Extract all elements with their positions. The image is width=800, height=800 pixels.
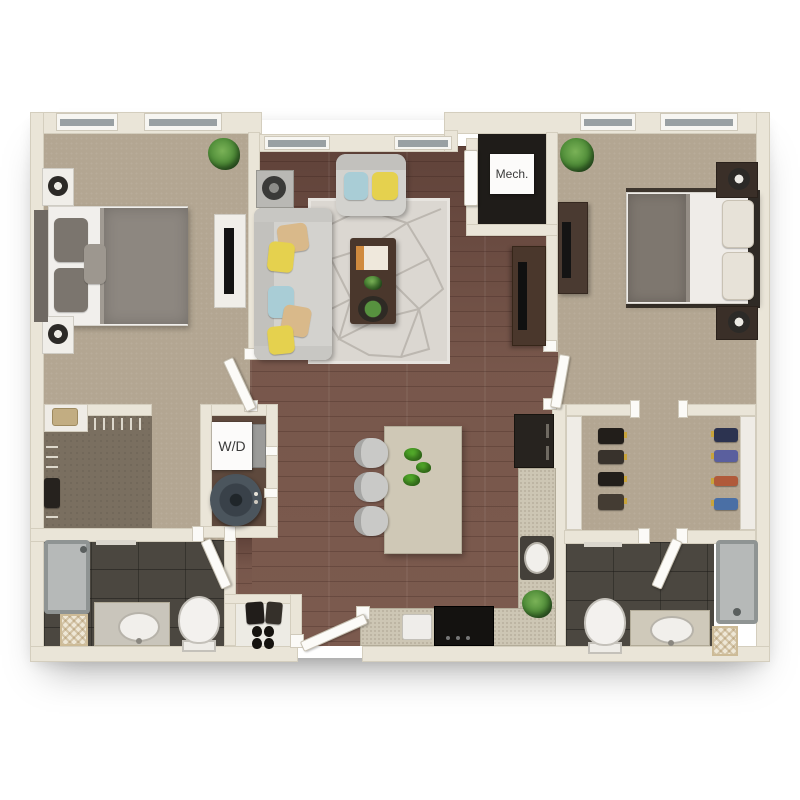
- kitchen-counter-plant: [522, 590, 552, 618]
- hanger-icon: [130, 418, 132, 430]
- wall-laundry-bottom: [200, 526, 278, 538]
- bathroom1-hamper: [60, 614, 88, 646]
- window-glass: [665, 119, 733, 126]
- entry-closet-coat: [265, 601, 283, 624]
- stove-knob: [466, 636, 470, 640]
- stove-knob: [456, 636, 460, 640]
- window-bedroom2-left: [580, 113, 636, 131]
- bedroom2-lamp-bottom: [728, 311, 750, 333]
- bathroom1-toilet: [178, 596, 220, 644]
- doorframe-closet2-left: [630, 400, 640, 418]
- window-glass: [149, 119, 217, 126]
- hanger-icon: [46, 456, 58, 458]
- hanger-hook-icon: [624, 454, 627, 460]
- bedroom2-blanket: [628, 194, 690, 302]
- bedroom1-headboard: [34, 210, 48, 322]
- hanger-icon: [139, 418, 141, 430]
- hanger-icon: [46, 446, 58, 448]
- bathroom2-hamper: [712, 626, 738, 656]
- laundry-machine-panel: [252, 424, 266, 468]
- doorframe-laundry-top: [264, 446, 278, 456]
- doorframe-bathroom2-left: [638, 528, 650, 544]
- bedroom1-tv: [224, 228, 234, 294]
- entry-closet-coat: [245, 601, 264, 624]
- island-greens: [416, 462, 431, 473]
- bedroom1-pillow-bottom: [54, 268, 88, 312]
- hanger-icon: [46, 466, 58, 468]
- laundry-label-text: W/D: [218, 438, 245, 454]
- closet2-hanging-clothes-purple: [714, 450, 738, 462]
- wall-closet2-top-left: [566, 404, 638, 416]
- floor-plan: Mech. W/D: [0, 0, 800, 800]
- island-greens: [403, 474, 420, 486]
- closet2-hanging-clothes-dark: [598, 450, 624, 464]
- bedroom1-pillow-top: [54, 218, 88, 262]
- closet2-shelf-left: [566, 416, 582, 530]
- wall-closet2-top-right: [680, 404, 756, 416]
- refrigerator-handle: [546, 424, 549, 438]
- wall-bathroom1-right: [224, 540, 236, 646]
- hanger-icon: [94, 418, 96, 430]
- shoe-icon: [252, 626, 262, 637]
- armchair-pillow-yellow: [372, 172, 398, 200]
- shoe-icon: [264, 638, 274, 649]
- closet2-hanging-clothes-orange: [714, 476, 738, 486]
- closet2-hanging-clothes-navy: [714, 428, 738, 442]
- doorframe-laundry-bottom: [264, 488, 278, 498]
- wall-mech-bottom: [466, 224, 558, 236]
- closet2-hanging-clothes-blue: [714, 498, 738, 510]
- wall-bedroom1-closet-stub: [86, 404, 152, 416]
- closet1-hanging-clothes: [44, 478, 60, 508]
- armchair-pillow-blue: [344, 172, 368, 200]
- exterior-wall-bottom-right: [362, 646, 770, 662]
- coffee-table-magazine: [356, 246, 388, 270]
- living-armchair-back: [336, 154, 406, 170]
- coffee-table-plant: [364, 276, 382, 290]
- tub-faucet: [733, 608, 741, 616]
- hanger-icon: [121, 418, 123, 430]
- closet2-hanging-clothes-dark: [598, 494, 624, 510]
- closet2-hanging-clothes-dark: [598, 472, 624, 486]
- hanger-hook-icon: [711, 478, 714, 484]
- bathroom2-towel-bar: [584, 542, 622, 547]
- bedroom2-pillow-top: [722, 200, 754, 248]
- doorframe-bathroom1-right: [224, 526, 236, 542]
- hanger-hook-icon: [711, 431, 714, 437]
- bedroom1-accent-pillow: [84, 244, 106, 284]
- window-glass: [398, 140, 448, 147]
- window-bedroom1-left: [56, 113, 118, 131]
- doorframe-bathroom1-left: [192, 526, 204, 542]
- island-stool: [354, 438, 388, 468]
- bedroom2-lamp-top: [728, 168, 750, 190]
- window-glass: [60, 119, 114, 126]
- hanger-hook-icon: [624, 498, 627, 504]
- hanger-hook-icon: [624, 476, 627, 482]
- stove: [434, 606, 494, 646]
- kitchen-small-appliance: [402, 614, 432, 640]
- mech-label: Mech.: [490, 154, 534, 194]
- washer-control-dot: [254, 492, 258, 496]
- hanger-hook-icon: [711, 500, 714, 506]
- window-glass: [584, 119, 633, 126]
- bedroom1-plant: [208, 138, 240, 170]
- refrigerator-handle: [546, 446, 549, 460]
- shoe-icon: [252, 638, 262, 649]
- bedroom1-duvet: [100, 208, 188, 324]
- wall-living-bedroom2: [546, 132, 558, 352]
- hanger-icon: [46, 516, 58, 518]
- bathroom1-faucet: [136, 638, 142, 644]
- hanger-hook-icon: [624, 432, 627, 438]
- hanger-hook-icon: [711, 453, 714, 459]
- sofa-pillow-yellow-bottom: [267, 325, 296, 356]
- window-living-right: [394, 136, 452, 150]
- shower1-head: [80, 546, 87, 553]
- bedroom1-lamp-top: [48, 176, 68, 196]
- window-bedroom1-right: [144, 113, 222, 131]
- doorframe-closet2-right: [678, 400, 688, 418]
- living-tv: [518, 262, 527, 330]
- shoe-icon: [264, 626, 274, 637]
- island-stool: [354, 472, 388, 502]
- living-speaker: [262, 176, 286, 200]
- kitchen-island: [384, 426, 462, 554]
- bedroom2-tv: [562, 222, 571, 278]
- washer-control-dot: [254, 500, 258, 504]
- coffee-table-bowl: [358, 296, 388, 322]
- bathroom2-toilet: [584, 598, 626, 646]
- bedroom1-lamp-bottom: [48, 324, 68, 344]
- wall-laundry-right: [266, 404, 278, 538]
- bedroom2-plant: [560, 138, 594, 172]
- hanger-icon: [112, 418, 114, 430]
- kitchen-sink: [524, 542, 550, 574]
- bathroom1-towel-bar: [96, 540, 136, 545]
- bedroom2-pillow-bottom: [722, 252, 754, 300]
- closet1-basket: [52, 408, 78, 426]
- sofa-pillow-yellow-top: [267, 241, 296, 274]
- stove-knob: [446, 636, 450, 640]
- island-stool: [354, 506, 388, 536]
- laundry-label: W/D: [212, 422, 252, 470]
- wall-laundry-left: [200, 404, 212, 538]
- window-bedroom2-right: [660, 113, 738, 131]
- mech-door: [464, 150, 478, 206]
- bathroom2-faucet: [668, 640, 674, 646]
- window-glass: [268, 140, 326, 147]
- island-greens: [404, 448, 422, 461]
- closet2-shelf-right: [740, 416, 756, 530]
- closet2-hanging-clothes-dark: [598, 428, 624, 444]
- living-sofa-arm-top: [254, 208, 332, 222]
- mech-label-text: Mech.: [496, 167, 529, 181]
- window-living-left: [264, 136, 330, 150]
- hanger-icon: [103, 418, 105, 430]
